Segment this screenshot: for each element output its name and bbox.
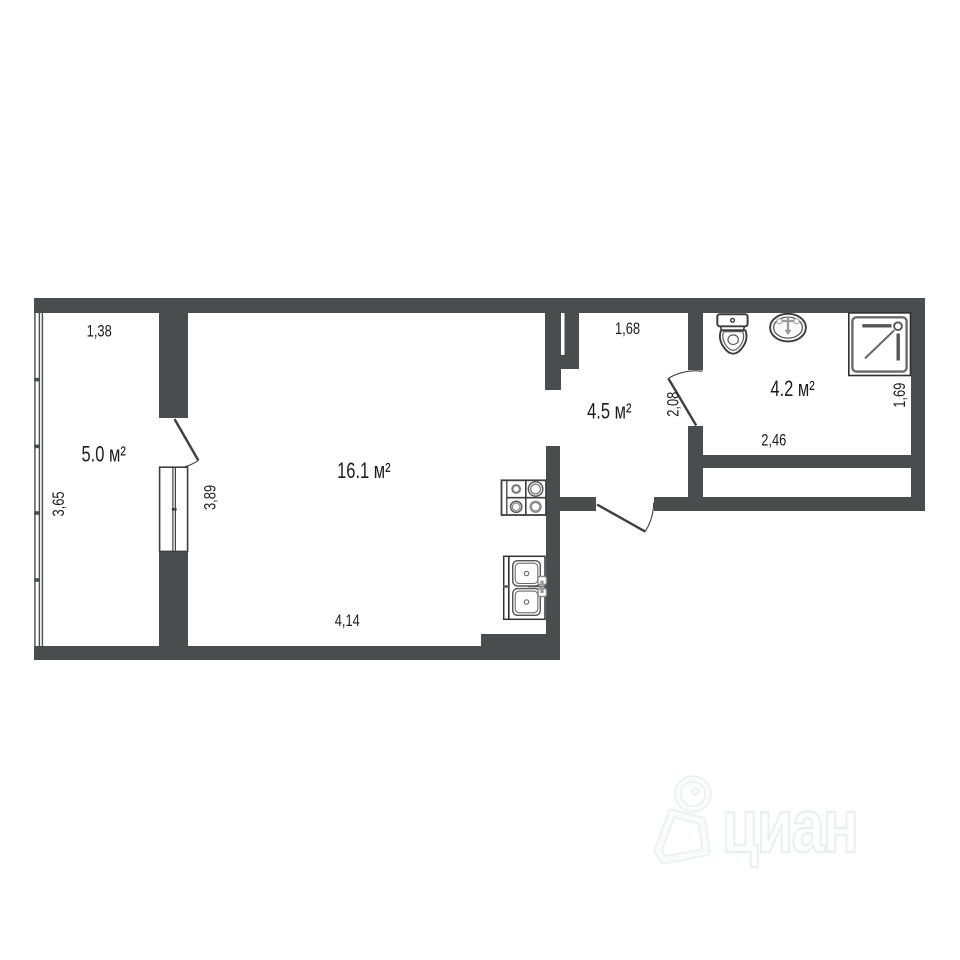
- svg-text:1,69: 1,69: [890, 383, 909, 408]
- svg-text:3,65: 3,65: [49, 491, 68, 516]
- svg-text:4,14: 4,14: [335, 611, 360, 630]
- svg-text:2,46: 2,46: [761, 431, 786, 450]
- svg-text:4.5 м²: 4.5 м²: [587, 399, 632, 424]
- svg-text:5.0 м²: 5.0 м²: [82, 442, 127, 467]
- svg-text:циан: циан: [722, 785, 857, 868]
- svg-text:2,08: 2,08: [664, 392, 683, 417]
- svg-text:1,38: 1,38: [87, 322, 112, 341]
- svg-text:1,68: 1,68: [615, 319, 640, 338]
- svg-text:4.2 м²: 4.2 м²: [770, 377, 815, 402]
- svg-text:16.1 м²: 16.1 м²: [337, 459, 391, 484]
- svg-text:3,89: 3,89: [201, 485, 220, 510]
